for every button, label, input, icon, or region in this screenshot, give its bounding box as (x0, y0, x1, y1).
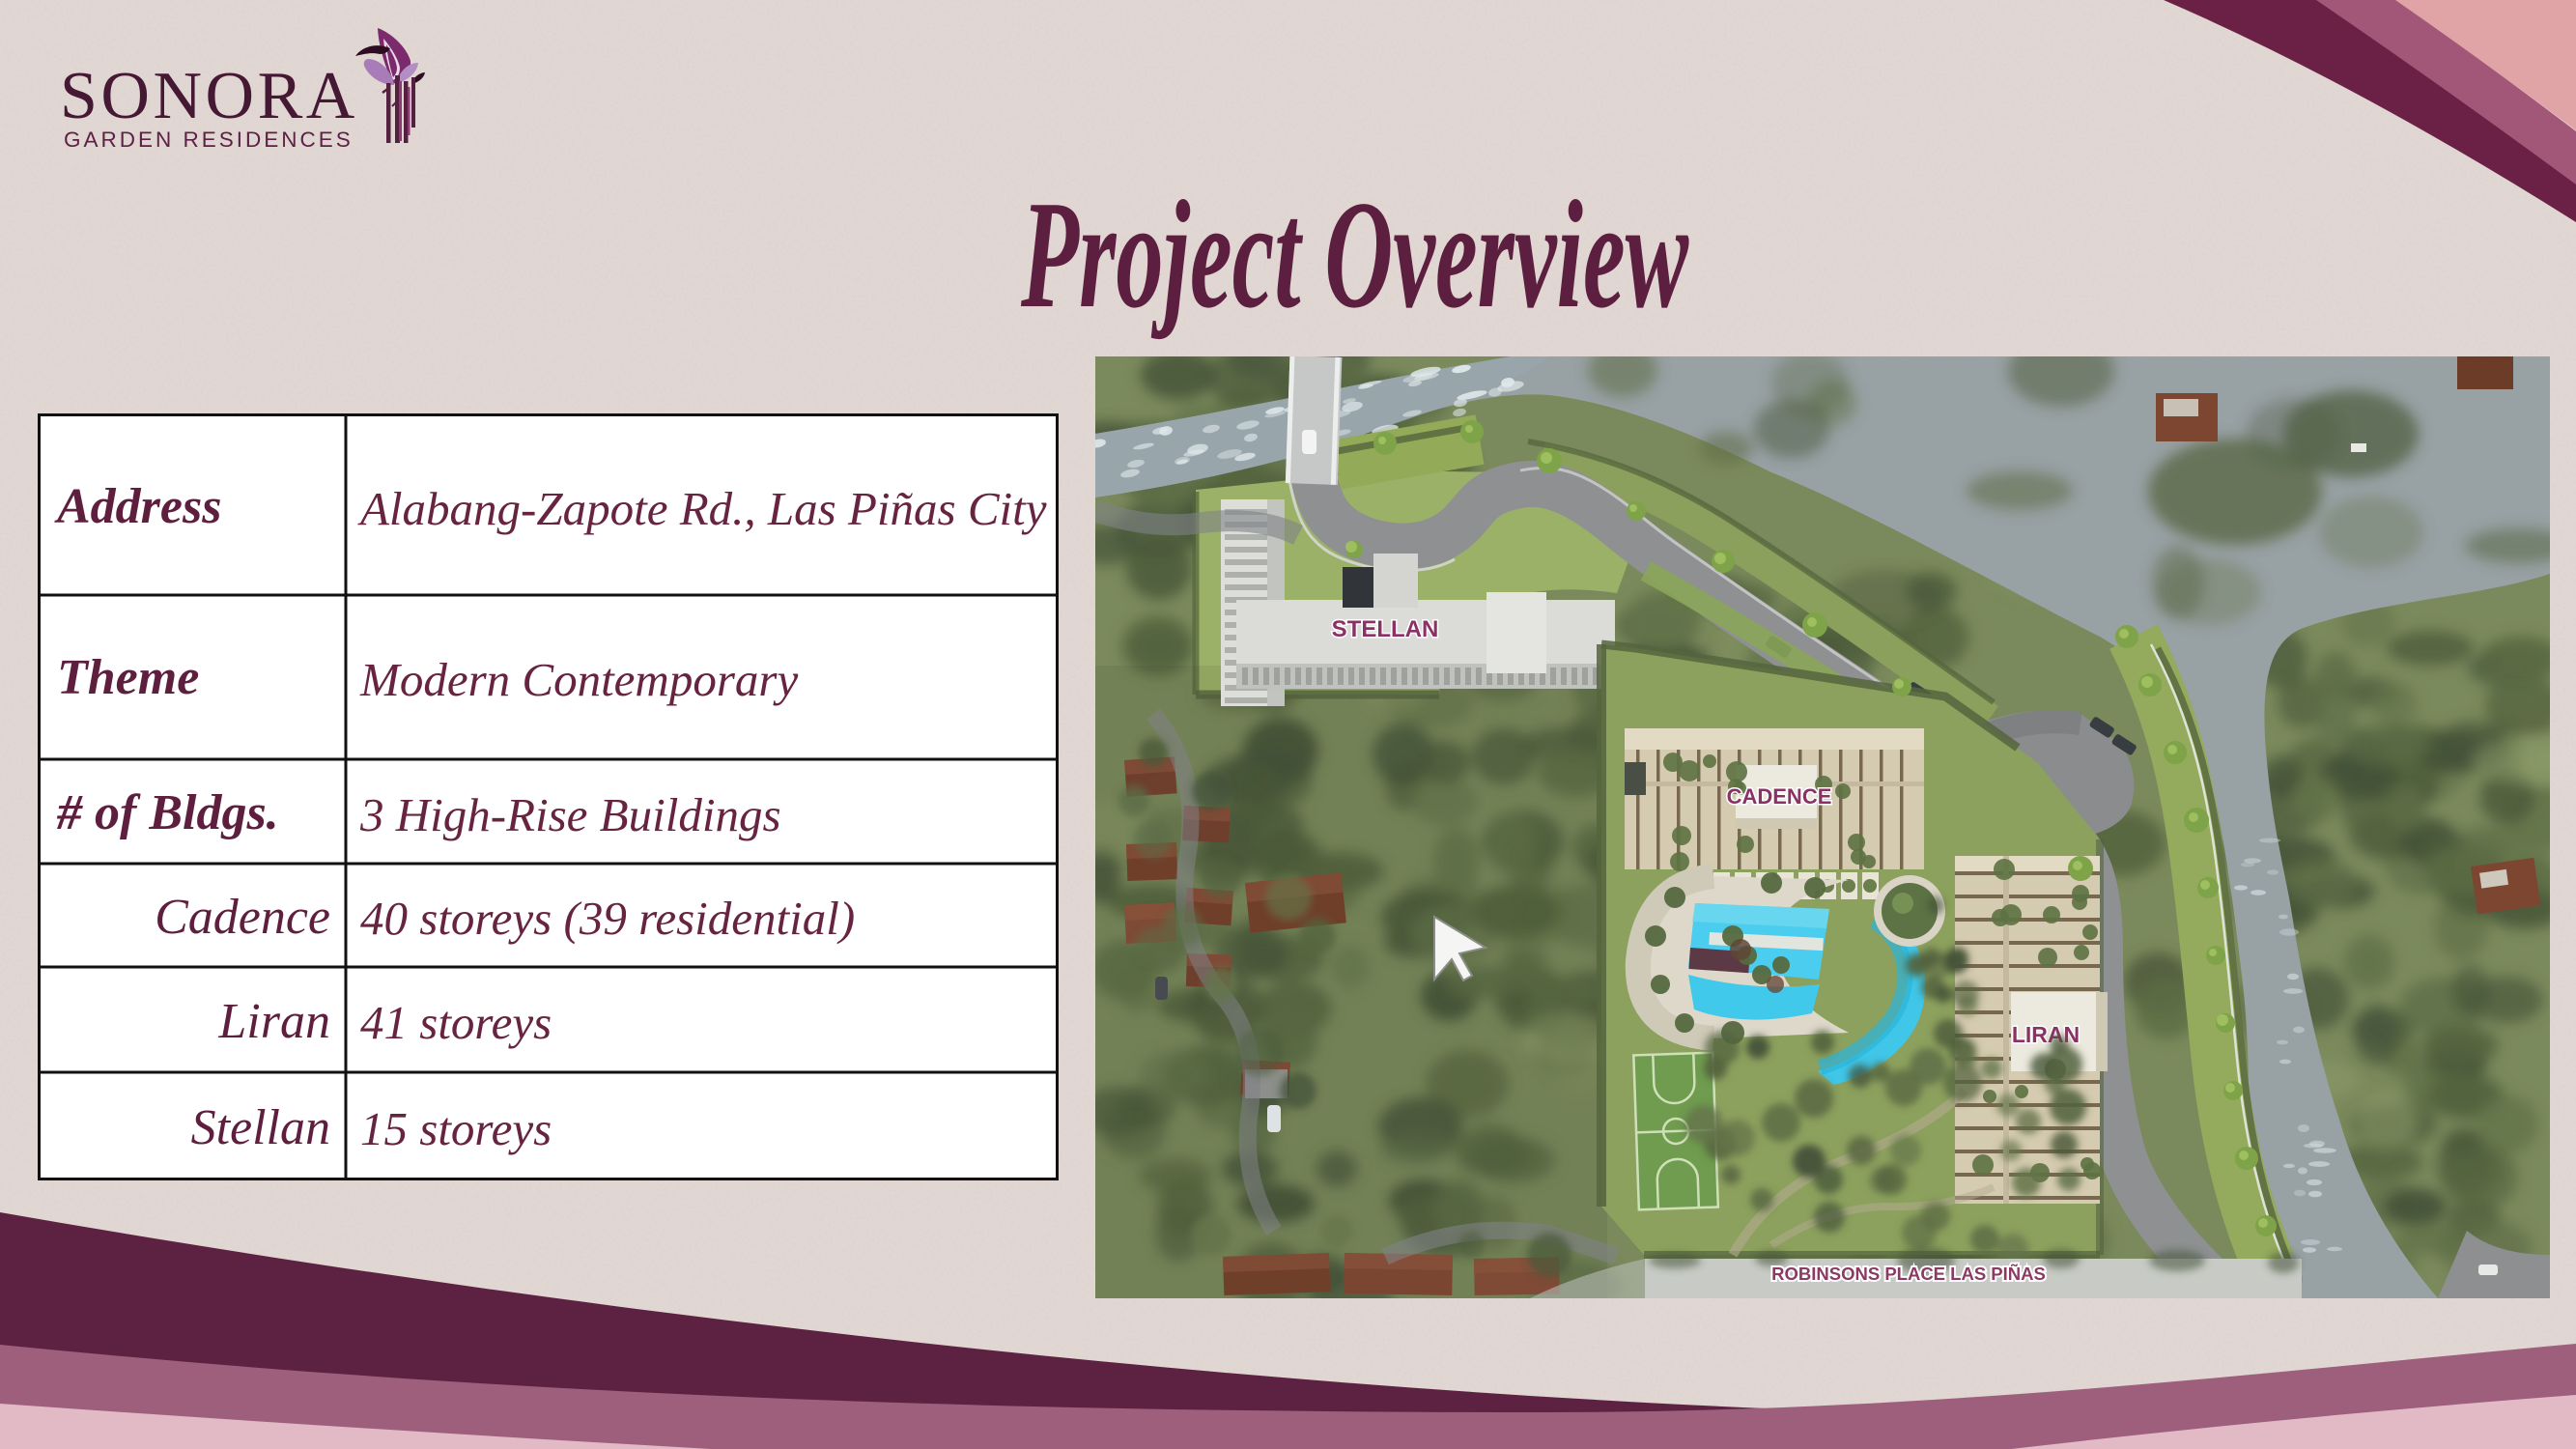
svg-text:LIRAN: LIRAN (2012, 1022, 2080, 1047)
svg-text:CADENCE: CADENCE (1727, 784, 1832, 809)
svg-text:STELLAN: STELLAN (1332, 616, 1439, 642)
